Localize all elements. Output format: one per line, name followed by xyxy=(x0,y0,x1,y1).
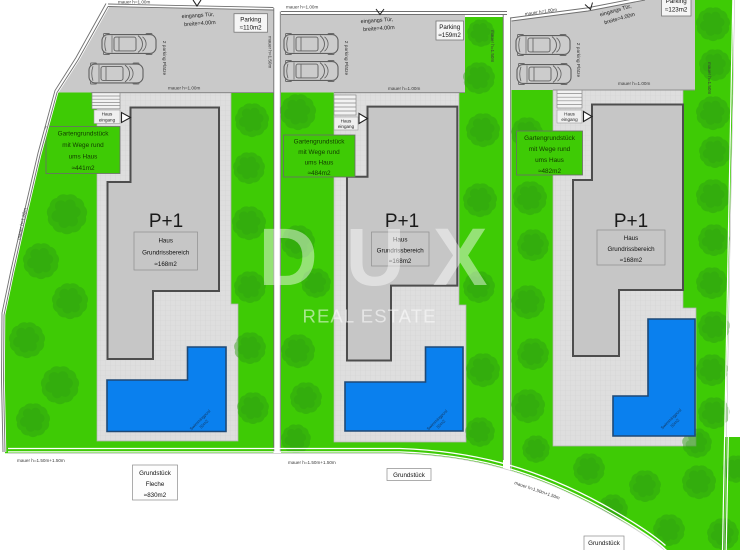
svg-text:mauer h=1.50m: mauer h=1.50m xyxy=(490,30,495,62)
svg-text:P+1: P+1 xyxy=(149,211,183,232)
svg-text:mauer h=1.50m+1.50m: mauer h=1.50m+1.50m xyxy=(288,460,336,465)
svg-text:Haus: Haus xyxy=(102,112,113,117)
svg-text:eingang: eingang xyxy=(338,124,355,129)
svg-text:mauer h=1.00m: mauer h=1.00m xyxy=(618,81,650,86)
svg-text:Grundstück: Grundstück xyxy=(393,472,426,479)
svg-text:≈159m2: ≈159m2 xyxy=(439,32,462,39)
svg-text:2 parking Plätze: 2 parking Plätze xyxy=(343,41,349,76)
svg-text:≈830m2: ≈830m2 xyxy=(144,492,167,499)
svg-text:Gartengrundstück: Gartengrundstück xyxy=(294,139,346,146)
svg-text:ums Haus: ums Haus xyxy=(69,154,98,161)
svg-text:Grundstück: Grundstück xyxy=(139,470,172,477)
svg-text:Gartengrundstück: Gartengrundstück xyxy=(58,131,110,138)
svg-text:≈441m2: ≈441m2 xyxy=(71,165,94,172)
svg-text:≈168m2: ≈168m2 xyxy=(620,257,643,264)
svg-text:≈484m2: ≈484m2 xyxy=(307,170,330,177)
svg-text:Parking: Parking xyxy=(240,17,262,24)
svg-text:2 parking Plätze: 2 parking Plätze xyxy=(161,41,167,76)
svg-text:Grundrissbereich: Grundrissbereich xyxy=(607,246,655,253)
svg-text:eingang: eingang xyxy=(561,117,578,122)
svg-text:mauer h=1.50m: mauer h=1.50m xyxy=(707,62,712,94)
svg-text:mauer h=1.00m: mauer h=1.00m xyxy=(388,86,420,91)
svg-text:Parking: Parking xyxy=(439,24,461,31)
svg-text:Haus: Haus xyxy=(624,235,638,242)
svg-text:mit Wege rund: mit Wege rund xyxy=(298,149,340,156)
svg-text:mauer h=1.50m: mauer h=1.50m xyxy=(268,36,273,68)
svg-text:Haus: Haus xyxy=(158,238,172,245)
svg-text:≈110m2: ≈110m2 xyxy=(240,25,262,32)
svg-text:ums Haus: ums Haus xyxy=(535,157,564,164)
svg-text:mit Wege rund: mit Wege rund xyxy=(62,142,104,149)
svg-text:P+1: P+1 xyxy=(614,211,648,232)
svg-text:Fleche: Fleche xyxy=(146,481,165,488)
svg-text:Haus: Haus xyxy=(341,118,352,123)
svg-text:mauer h=1.50m+1.50m: mauer h=1.50m+1.50m xyxy=(17,458,65,463)
svg-text:Gartengrundstück: Gartengrundstück xyxy=(524,135,576,142)
svg-text:mit Wege rund: mit Wege rund xyxy=(529,146,571,153)
svg-text:mauer h=1.00m: mauer h=1.00m xyxy=(118,0,150,5)
svg-text:Grundrissbereich: Grundrissbereich xyxy=(142,250,190,257)
svg-text:≈482m2: ≈482m2 xyxy=(538,168,561,175)
svg-text:Haus: Haus xyxy=(564,111,575,116)
svg-text:mauer h=1.00m: mauer h=1.00m xyxy=(168,86,200,91)
svg-text:Parking: Parking xyxy=(666,0,688,5)
svg-text:≈168m2: ≈168m2 xyxy=(155,261,178,268)
svg-text:mauer h=1.00m: mauer h=1.00m xyxy=(286,5,318,10)
svg-text:2 parking Plätze: 2 parking Plätze xyxy=(575,43,581,78)
svg-text:eingang: eingang xyxy=(99,117,116,122)
svg-text:DUX: DUX xyxy=(259,212,516,303)
svg-text:≈123m2: ≈123m2 xyxy=(665,7,688,14)
svg-text:REAL ESTATE: REAL ESTATE xyxy=(303,306,437,327)
svg-text:ums Haus: ums Haus xyxy=(305,160,334,167)
svg-text:Grundstück: Grundstück xyxy=(588,540,621,547)
